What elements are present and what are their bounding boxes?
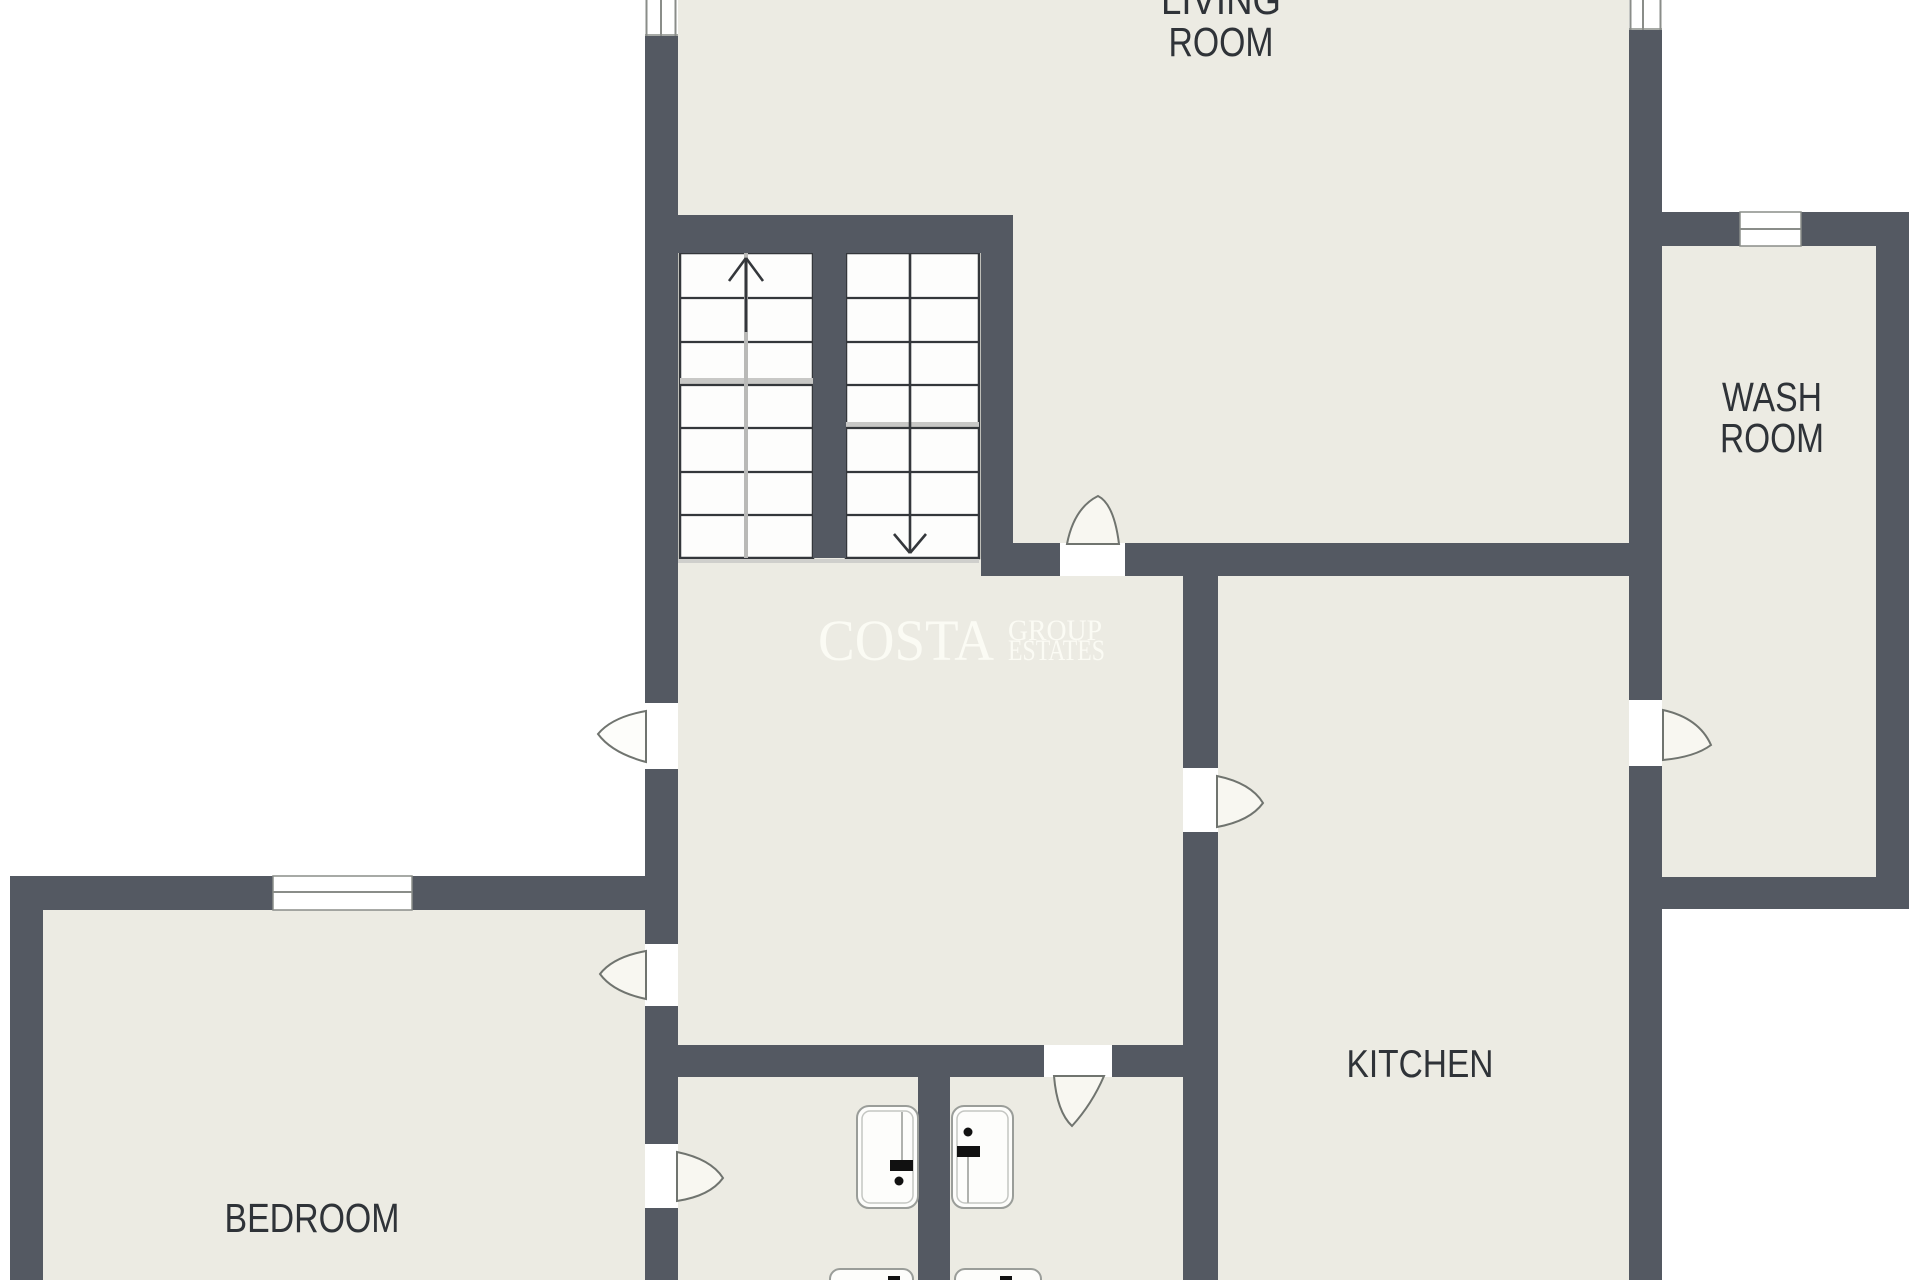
svg-text:ROOM: ROOM <box>1169 19 1274 65</box>
svg-text:COSTA: COSTA <box>818 608 994 673</box>
svg-text:ESTATES: ESTATES <box>1008 634 1105 667</box>
svg-text:WASH: WASH <box>1722 374 1822 420</box>
svg-text:ROOM: ROOM <box>1720 415 1824 461</box>
svg-text:BEDROOM: BEDROOM <box>225 1195 400 1241</box>
svg-text:KITCHEN: KITCHEN <box>1347 1043 1494 1086</box>
